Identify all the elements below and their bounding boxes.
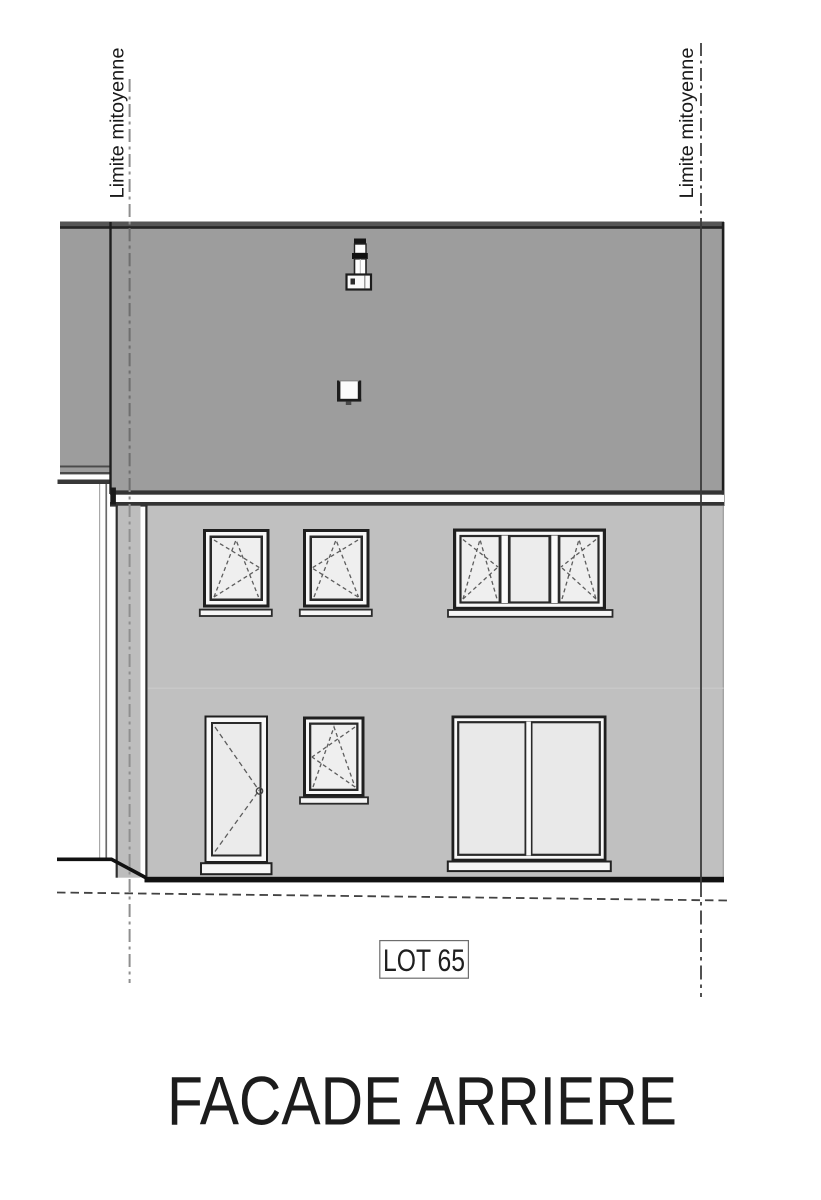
svg-text:LOT 65: LOT 65: [383, 942, 465, 978]
svg-text:FACADE ARRIERE: FACADE ARRIERE: [167, 1063, 677, 1140]
svg-text:Limite mitoyenne: Limite mitoyenne: [107, 48, 129, 199]
svg-text:Limite mitoyenne: Limite mitoyenne: [676, 48, 698, 199]
